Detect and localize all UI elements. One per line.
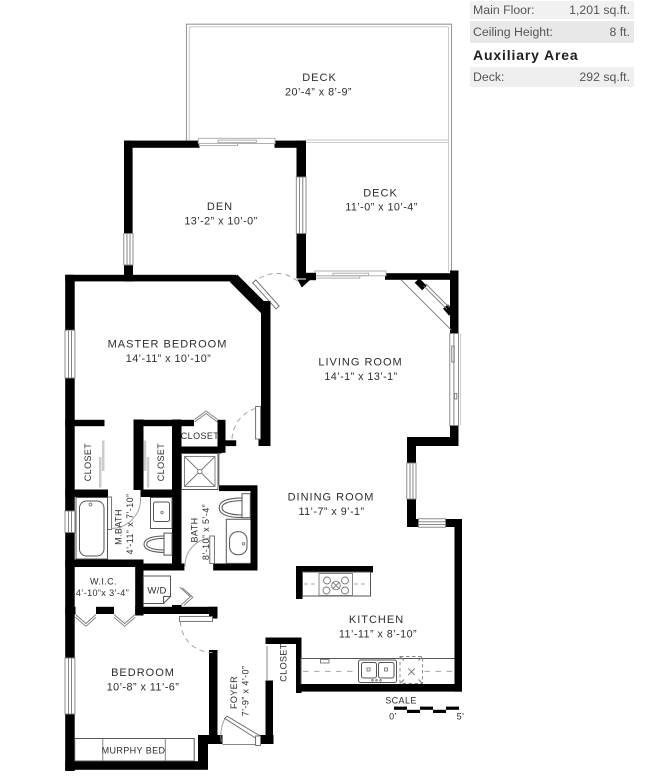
svg-text:KITCHEN: KITCHEN bbox=[349, 614, 404, 626]
svg-text:4’-11” x 7’-10”: 4’-11” x 7’-10” bbox=[125, 494, 135, 555]
svg-text:5’: 5’ bbox=[457, 712, 465, 722]
svg-text:4’-10”x 3’-4”: 4’-10”x 3’-4” bbox=[76, 588, 129, 598]
svg-text:LIVING ROOM: LIVING ROOM bbox=[318, 357, 402, 369]
svg-text:20’-4” x 8’-9”: 20’-4” x 8’-9” bbox=[285, 87, 352, 99]
svg-text:11’-0” x 10’-4”: 11’-0” x 10’-4” bbox=[345, 202, 418, 214]
svg-text:DECK: DECK bbox=[363, 188, 398, 200]
svg-text:BATH: BATH bbox=[190, 518, 200, 543]
svg-text:SCALE: SCALE bbox=[385, 696, 417, 706]
svg-text:10’-8” x 11’-6”: 10’-8” x 11’-6” bbox=[107, 682, 180, 694]
svg-text:CLOSET: CLOSET bbox=[83, 443, 93, 482]
svg-text:DEN: DEN bbox=[207, 201, 233, 213]
svg-text:CLOSET: CLOSET bbox=[156, 443, 166, 482]
svg-text:14’-11” x 10’-10”: 14’-11” x 10’-10” bbox=[126, 353, 211, 365]
svg-text:DECK: DECK bbox=[302, 72, 337, 84]
svg-text:W.I.C.: W.I.C. bbox=[90, 577, 117, 587]
svg-text:14’-1” x 13’-1”: 14’-1” x 13’-1” bbox=[324, 371, 397, 383]
svg-text:CLOSET: CLOSET bbox=[279, 643, 289, 682]
svg-text:MASTER BEDROOM: MASTER BEDROOM bbox=[108, 339, 228, 351]
svg-text:13’-2” x 10’-0”: 13’-2” x 10’-0” bbox=[184, 216, 257, 228]
svg-text:BEDROOM: BEDROOM bbox=[111, 667, 175, 679]
svg-text:W/D: W/D bbox=[147, 586, 166, 597]
svg-text:CLOSET: CLOSET bbox=[181, 431, 220, 441]
svg-text:FOYER: FOYER bbox=[229, 676, 239, 709]
svg-text:7’-9” x 4’-0”: 7’-9” x 4’-0” bbox=[241, 666, 251, 717]
svg-text:0’: 0’ bbox=[389, 712, 397, 722]
svg-text:11’-11” x 8’-10”: 11’-11” x 8’-10” bbox=[339, 629, 417, 641]
svg-text:MURPHY BED: MURPHY BED bbox=[102, 746, 166, 756]
svg-text:11’-7” x 9’-1”: 11’-7” x 9’-1” bbox=[298, 506, 364, 518]
svg-text:8’-10” x 5’-4”: 8’-10” x 5’-4” bbox=[201, 504, 211, 560]
svg-text:M.BATH: M.BATH bbox=[114, 509, 124, 545]
svg-text:DINING ROOM: DINING ROOM bbox=[288, 492, 375, 504]
